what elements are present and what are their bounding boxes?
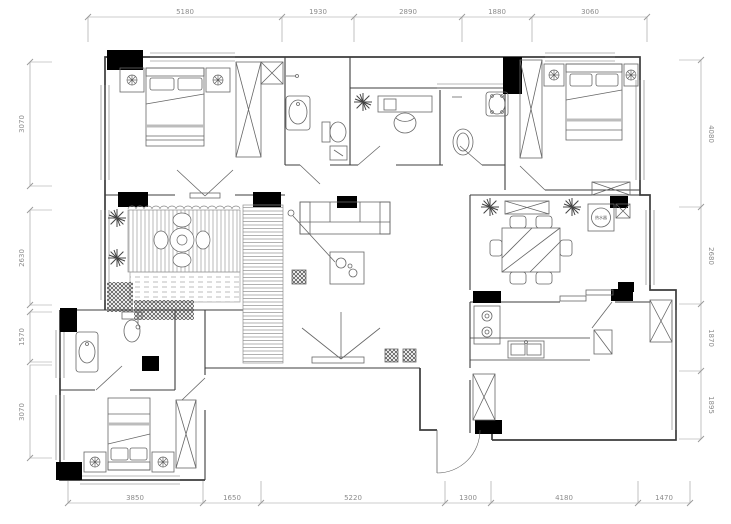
bed-icon <box>566 64 622 140</box>
chair-icon <box>394 113 416 133</box>
plant-icon <box>481 198 499 216</box>
coffee-table-icon <box>330 252 364 284</box>
door-leaf <box>460 146 482 165</box>
dining-room: 热水器 <box>481 198 630 284</box>
floor-lamp-icon <box>288 210 335 262</box>
wardrobe-icon <box>176 400 196 468</box>
column <box>503 57 522 94</box>
plant-icon <box>563 198 581 216</box>
nightstand-icon <box>206 68 230 92</box>
dimension-label: 1870 <box>707 329 715 347</box>
chair-icon <box>536 216 552 228</box>
storage-box-icon <box>261 62 283 84</box>
column <box>610 196 628 208</box>
dimension-label: 3070 <box>18 115 26 133</box>
bed-icon <box>108 398 150 470</box>
rug-dashed <box>130 272 240 302</box>
water-heater-icon: 热水器 <box>588 204 614 231</box>
nightstand-icon <box>544 64 564 86</box>
bathroom-top-middle <box>452 92 508 165</box>
dimension-left <box>27 59 52 461</box>
dimension-label: 3060 <box>581 8 599 16</box>
door-fold-icon <box>177 170 233 198</box>
cabinet-icon <box>592 182 630 195</box>
bed-icon <box>146 68 204 146</box>
chair-icon <box>173 213 191 227</box>
window-top-master <box>150 53 235 61</box>
dimension-label: 2680 <box>707 247 715 265</box>
plant-icon <box>354 93 372 111</box>
dimension-top-labels: 5180 1930 2890 1880 3060 <box>176 8 599 16</box>
sink-icon <box>76 332 98 372</box>
chair-icon <box>173 253 191 267</box>
washbasin-icon <box>453 129 473 155</box>
water-heater-label: 热水器 <box>595 214 607 220</box>
dimension-right-labels: 4080 2680 1870 1895 <box>707 125 715 414</box>
door-leaf <box>300 165 320 184</box>
dimension-right <box>679 57 704 442</box>
dimension-label: 5220 <box>344 494 362 502</box>
window-lightwell <box>437 84 503 88</box>
dimension-label: 3850 <box>126 494 144 502</box>
column <box>107 50 143 70</box>
bedroom-top-right <box>520 60 638 195</box>
wardrobe-icon <box>520 60 542 158</box>
kitchen <box>474 290 672 358</box>
chair-icon <box>490 240 502 256</box>
speaker-icon <box>403 349 416 362</box>
dimension-label: 1880 <box>488 8 506 16</box>
dining-table-icon <box>490 216 572 284</box>
dimension-label: 4080 <box>707 125 715 143</box>
dimension-top <box>85 14 650 42</box>
chair-icon <box>536 272 552 284</box>
pebble-patch <box>107 282 133 312</box>
wardrobe-icon <box>236 62 261 157</box>
window-bottom-bedroom3 <box>80 476 180 484</box>
dimension-left-labels: 3070 2630 1570 3070 <box>18 115 26 421</box>
dimension-label: 1930 <box>309 8 327 16</box>
window-right-bedroom2 <box>636 80 644 180</box>
chair-icon <box>560 240 572 256</box>
window-left-master <box>101 85 109 180</box>
column <box>473 291 501 303</box>
column <box>118 192 148 207</box>
pebble-patch <box>134 300 194 320</box>
sliding-door-icon <box>560 290 613 301</box>
dimension-label: 5180 <box>176 8 194 16</box>
dimension-bottom-labels: 3850 1650 5220 1300 4180 1470 <box>126 494 673 502</box>
kitchen-sink-icon <box>508 341 544 359</box>
dimension-label: 2630 <box>18 249 26 267</box>
dimension-label: 2890 <box>399 8 417 16</box>
bathroom-bottom-left <box>76 312 142 390</box>
nightstand-icon <box>84 452 106 472</box>
faucet-icon <box>286 75 299 78</box>
fridge-icon <box>650 300 672 342</box>
toilet-icon <box>322 122 346 142</box>
chair-icon <box>196 231 210 249</box>
column <box>475 420 502 434</box>
chair-icon <box>510 272 526 284</box>
floor-plan-canvas: 5180 1930 2890 1880 3060 3850 1650 5220 … <box>0 0 731 524</box>
appliance-icon <box>594 330 612 354</box>
dimension-label: 1470 <box>655 494 673 502</box>
column <box>60 308 77 332</box>
platform-strip <box>243 205 283 363</box>
scallop-edge <box>128 206 240 209</box>
shower-icon <box>330 146 347 160</box>
living-room <box>288 202 416 363</box>
balcony-tea-area <box>107 206 240 320</box>
door-leaf <box>592 302 612 328</box>
window-top-bedroom2 <box>545 53 615 61</box>
entry-door-arc <box>437 430 480 473</box>
door-leaf <box>358 146 380 165</box>
chair-icon <box>154 231 168 249</box>
tv-icon <box>302 312 380 363</box>
entry-closet-icon <box>473 374 495 420</box>
sink-icon <box>286 96 310 130</box>
door-leaf <box>182 378 205 400</box>
window-left-bedroom3 <box>56 395 64 460</box>
window-right-dining <box>646 210 654 285</box>
dimension-label: 3070 <box>18 403 26 421</box>
nightstand-icon <box>152 452 174 472</box>
study-room <box>354 93 432 165</box>
nightstand-icon <box>120 68 144 92</box>
chair-icon <box>510 216 526 228</box>
master-bedroom <box>120 62 283 198</box>
bedroom-bottom-left <box>84 378 205 472</box>
bathroom-top-left <box>286 75 347 185</box>
plant-icon <box>108 249 126 267</box>
window-left-bath <box>56 330 64 378</box>
sideboard-icon <box>505 201 549 214</box>
column <box>56 462 82 480</box>
desk-icon <box>378 96 432 112</box>
dimension-label: 1570 <box>18 328 26 346</box>
plant-icon <box>108 209 126 227</box>
door-leaf <box>96 366 122 390</box>
column <box>142 356 159 371</box>
door-leaf <box>520 166 545 190</box>
dimension-label: 4180 <box>555 494 573 502</box>
dimension-label: 1300 <box>459 494 477 502</box>
side-table-icon <box>292 270 306 284</box>
dimension-label: 1895 <box>707 396 715 414</box>
dimension-label: 1650 <box>223 494 241 502</box>
dimension-bottom <box>65 481 693 506</box>
floor-plan-page: 5180 1930 2890 1880 3060 3850 1650 5220 … <box>0 0 731 524</box>
column <box>618 282 634 292</box>
speaker-icon <box>385 349 398 362</box>
